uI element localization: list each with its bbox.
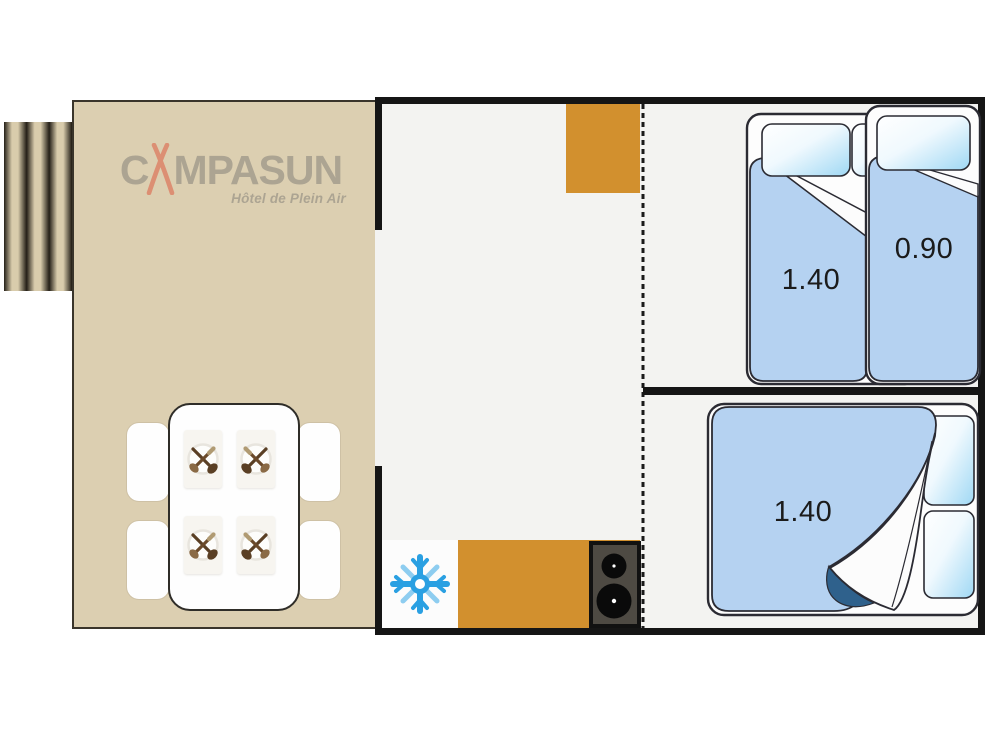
floorplan-canvas: C MPASUN Hôtel de Plein Air (0, 0, 1000, 750)
cutlery-icon (184, 430, 222, 488)
bed-size-label-double-bottom: 1.40 (753, 496, 853, 530)
bed-size-label-double-top: 1.40 (761, 264, 861, 298)
wardrobe-cabinet (566, 104, 640, 193)
cutlery-icon (237, 430, 275, 488)
dining-table (168, 403, 300, 611)
cutlery-icon (184, 516, 222, 574)
chair (127, 423, 169, 501)
chair (127, 521, 169, 599)
place-setting (237, 516, 275, 574)
chair (298, 521, 340, 599)
logo-prefix: C (120, 146, 149, 194)
entry-steps (4, 122, 72, 291)
fridge-box (382, 540, 458, 628)
place-setting (184, 516, 222, 574)
bed-size-label-single-top: 0.90 (874, 233, 974, 267)
place-setting (237, 430, 275, 488)
cutlery-icon (237, 516, 275, 574)
campasun-logo: C MPASUN Hôtel de Plein Air (116, 146, 346, 206)
logo-suffix: MPASUN (173, 146, 342, 194)
entrance-opening (375, 230, 382, 466)
chair (298, 423, 340, 501)
logo-wordmark: C MPASUN (116, 146, 346, 195)
place-setting (184, 430, 222, 488)
kitchen-counter (458, 540, 640, 628)
tipi-icon (145, 143, 176, 195)
